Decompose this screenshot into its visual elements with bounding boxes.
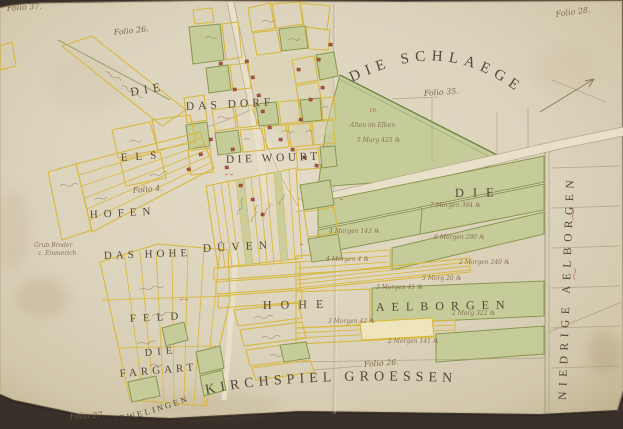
note-text: 4 Morgen 143 ℞ [328,228,380,235]
label-die-east: DIE [455,185,503,200]
note-text: 3 Morgen 42 ℞ [328,318,375,325]
note-text: 2 Morgen 240 ℞ [458,259,510,266]
note-text: 7 Morgen 364 ℞ [430,202,481,209]
map-canvas: DIEDAS DORFELSDIE WOURTHOFENDAS HOHEDÜVE… [0,0,623,429]
note-text: 3 Morgen 41 ℞ [376,284,423,291]
note-text: 2 Morg 322 ℞ [451,310,495,317]
note-text: 5 Morg 425 ℞ [357,137,400,144]
note-text: z. Emmerich [37,250,76,257]
note-r-text: 16. [369,108,378,114]
folio-27: Folio 27. [69,410,106,421]
note-text: 5 Morg 20 ℞ [422,275,462,282]
note-text: Alten im Elben [349,122,395,129]
note-text: 2 Morgen 141 ℞ [387,338,439,345]
map-scan-page: DIEDAS DORFELSDIE WOURTHOFENDAS HOHEDÜVE… [0,0,623,429]
note-text: 6 Morgen 280 ℞ [434,234,485,241]
note-text: 4 Morgen 4 ℞ [325,256,369,263]
note-text: Grub Broder [34,242,74,249]
label-hohe-mid: HOHE [263,297,333,312]
